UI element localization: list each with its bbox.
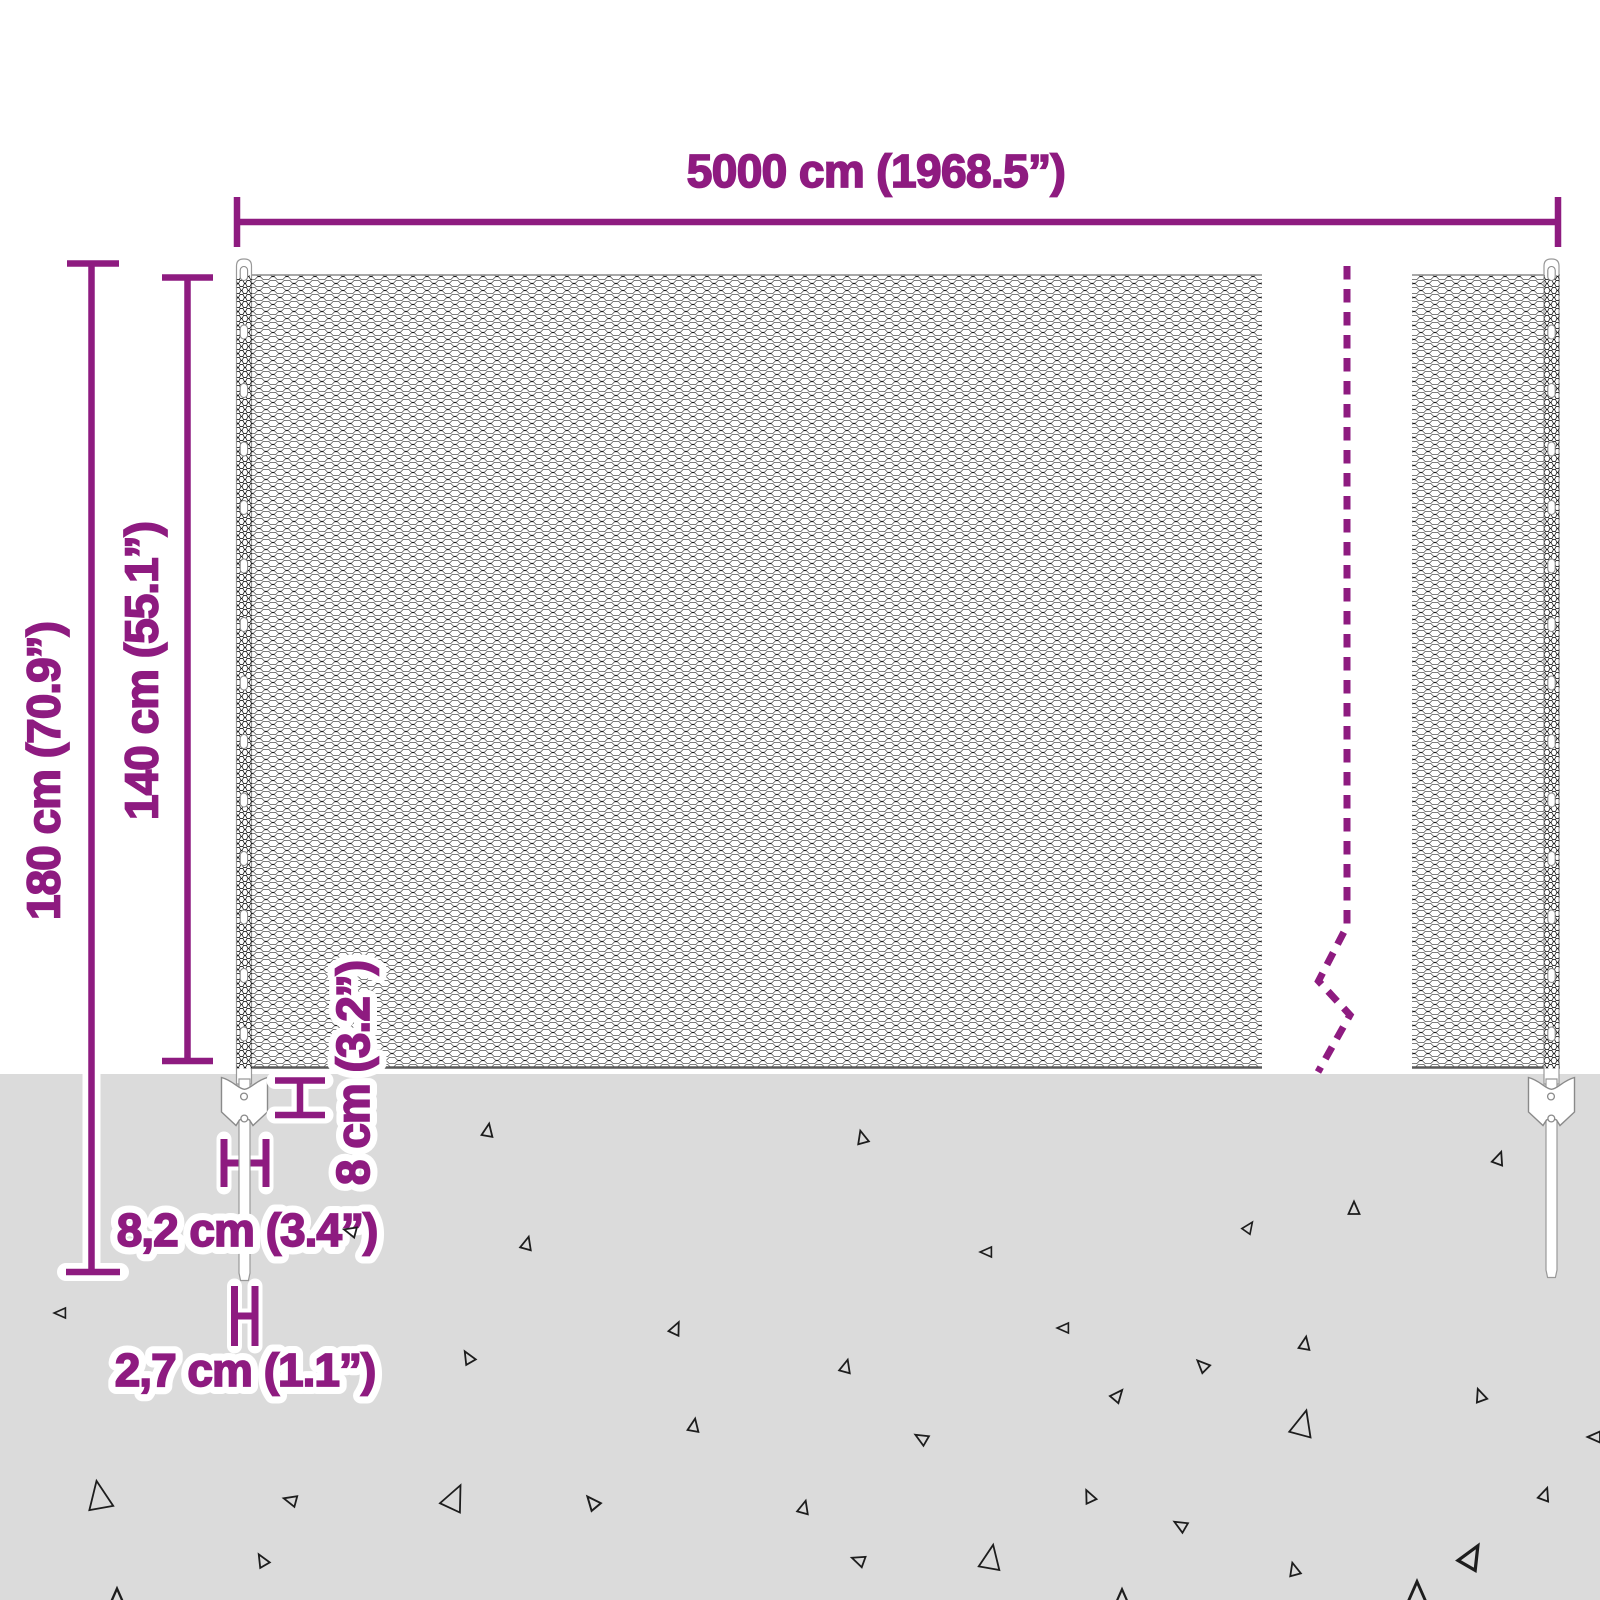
svg-text:140 cm (55.1”): 140 cm (55.1”) <box>116 522 168 820</box>
svg-text:180 cm (70.9”): 180 cm (70.9”) <box>18 622 70 920</box>
svg-text:2,7 cm (1.1”): 2,7 cm (1.1”) <box>115 1344 376 1396</box>
svg-text:5000 cm (1968.5”): 5000 cm (1968.5”) <box>687 145 1066 197</box>
svg-text:8,2 cm (3.4”): 8,2 cm (3.4”) <box>117 1204 378 1256</box>
svg-text:8 cm (3.2”): 8 cm (3.2”) <box>327 961 379 1185</box>
